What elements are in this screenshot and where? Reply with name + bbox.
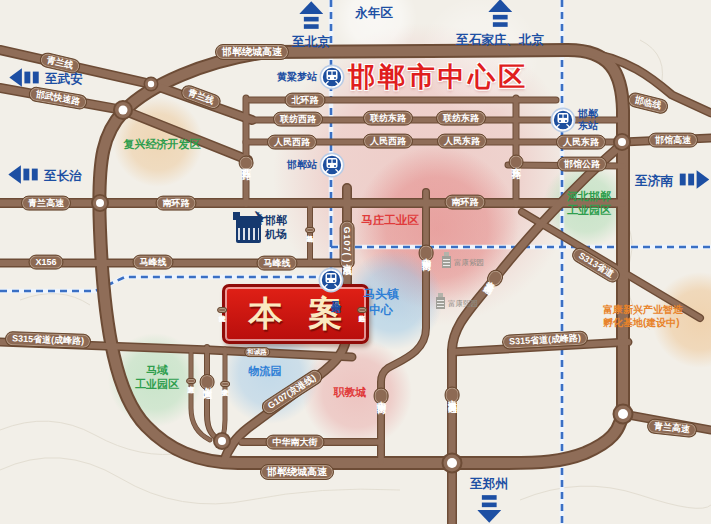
direction-arrow: 至武安 [9, 68, 83, 91]
metro-station-icon [319, 76, 345, 93]
road-label: 联纺西路 [273, 112, 323, 127]
zone-label: 物流园 [249, 364, 282, 378]
direction-label: 至武安 [45, 71, 83, 88]
station-马头站: 马头站 [318, 267, 344, 297]
building-icon [442, 256, 451, 268]
zone-label: 复兴经济开发区 [124, 137, 201, 151]
airport-terminal-icon: ✈ [236, 216, 261, 243]
direction-label: 永年区 [355, 5, 393, 22]
road-label: 金城大街 [217, 307, 227, 313]
zone-label: 富康新兴产业智造孵化基地(建设中) [603, 303, 683, 329]
road-label: 和诚路 [244, 347, 270, 357]
left-arrow-icon [8, 165, 40, 188]
company-marker: 富康熙园 [436, 297, 478, 309]
road-label: 中华南大街 [419, 245, 434, 262]
down-arrow-icon [477, 495, 501, 524]
road-label: 人民西路 [267, 135, 317, 150]
road-label: S315省道(成峰路) [5, 331, 91, 349]
road-label: 青兰高速 [646, 418, 697, 438]
road-label: 马峰线 [133, 255, 174, 270]
labels-layer: 邯郸市中心区 本案 ✈ 邯郸 机场 复兴经济开发区马庄工业区河北邯郸工业园区马头… [0, 0, 711, 524]
road-label: 邯郸绕城高速 [215, 44, 289, 60]
road-label: 西环路 [239, 156, 254, 171]
right-arrow-icon [677, 170, 709, 193]
station-label: 邯郸站 [287, 159, 317, 171]
direction-arrow: 至济南 [635, 170, 709, 193]
road-label: 邯郸绕城高速 [260, 464, 334, 480]
direction-label: 至长治 [44, 168, 82, 185]
station-邯郸东站: 邯郸东站 [550, 107, 576, 137]
road-label: 北环路 [285, 93, 326, 108]
station-label: 邯郸东站 [578, 108, 598, 131]
road-label: S315省道(成峰路) [502, 330, 589, 349]
zone-label: 河北邯郸工业园区 [567, 189, 611, 218]
road-label: 青兰线 [179, 83, 223, 111]
road-label: 人民东路 [437, 134, 487, 149]
road-label: 邯临线 [626, 91, 669, 115]
direction-label: 至北京 [292, 34, 330, 51]
station-黄粱梦站: 黄粱梦站 [319, 64, 345, 94]
road-label: 邯馆高速 [648, 133, 698, 148]
up-arrow-icon [488, 0, 512, 30]
metro-station-icon [550, 119, 576, 136]
road-label: G107(京港线) [340, 220, 355, 269]
station-label: 黄粱梦站 [277, 71, 317, 83]
road-label: X156 [28, 255, 63, 270]
road-label: 邯馆公路 [557, 157, 607, 172]
road-label: 中堡大街 [220, 381, 230, 387]
plane-icon: ✈ [247, 204, 271, 234]
direction-label: 永年区 [355, 5, 393, 22]
road-label: 京港澳高速 [445, 387, 460, 404]
road-label: 青兰高速 [21, 196, 71, 211]
road-label: 东环路 [509, 155, 524, 170]
company-label: 富康紫园 [454, 258, 484, 268]
road-label: 惠洲大道 [186, 378, 196, 384]
project-label: 本案 [249, 291, 369, 337]
map-title: 邯郸市中心区 [348, 59, 528, 95]
project-marker: 本案 [222, 284, 369, 344]
metro-station-icon [319, 164, 345, 181]
station-label: 马头站 [330, 293, 342, 296]
road-label: 机场路 [305, 227, 315, 233]
direction-arrow: 至长治 [8, 165, 82, 188]
road-label: 联纺东路 [363, 111, 413, 126]
left-arrow-icon [9, 68, 41, 91]
road-label: 马峰线 [257, 256, 298, 271]
road-label: 创业大道 [200, 374, 215, 390]
zone-label: 马头镇中心 [363, 287, 399, 318]
road-label: 南环路 [156, 196, 197, 211]
direction-arrow: 至北京 [292, 1, 330, 51]
road-label: S313省道 [569, 245, 622, 285]
airport-marker: ✈ 邯郸 机场 [236, 212, 287, 243]
up-arrow-icon [299, 1, 323, 32]
road-label: 中华南大街 [266, 435, 325, 450]
road-label: 南环路 [445, 195, 486, 210]
building-icon [436, 297, 445, 309]
road-label: 京港澳高速 [484, 267, 505, 289]
road-label: 彩虹路 [357, 307, 367, 313]
direction-label: 至石家庄、北京 [456, 32, 544, 49]
company-marker: 富康紫园 [442, 256, 484, 268]
road-label: 中华南大街 [374, 388, 389, 405]
station-邯郸站: 邯郸站 [319, 152, 345, 182]
direction-label: 至济南 [635, 173, 673, 190]
direction-arrow: 至石家庄、北京 [456, 0, 544, 49]
road-label: 人民西路 [363, 134, 413, 149]
zone-label: 马域工业园区 [135, 363, 179, 392]
zone-label: 马庄工业区 [361, 213, 419, 228]
company-label: 富康熙园 [448, 299, 478, 309]
direction-label: 至郑州 [470, 476, 508, 493]
road-label: 联纺东路 [436, 111, 486, 126]
zone-label: 职教城 [334, 385, 367, 399]
location-map: 邯郸市中心区 本案 ✈ 邯郸 机场 复兴经济开发区马庄工业区河北邯郸工业园区马头… [0, 0, 711, 524]
direction-arrow: 至郑州 [470, 476, 508, 524]
